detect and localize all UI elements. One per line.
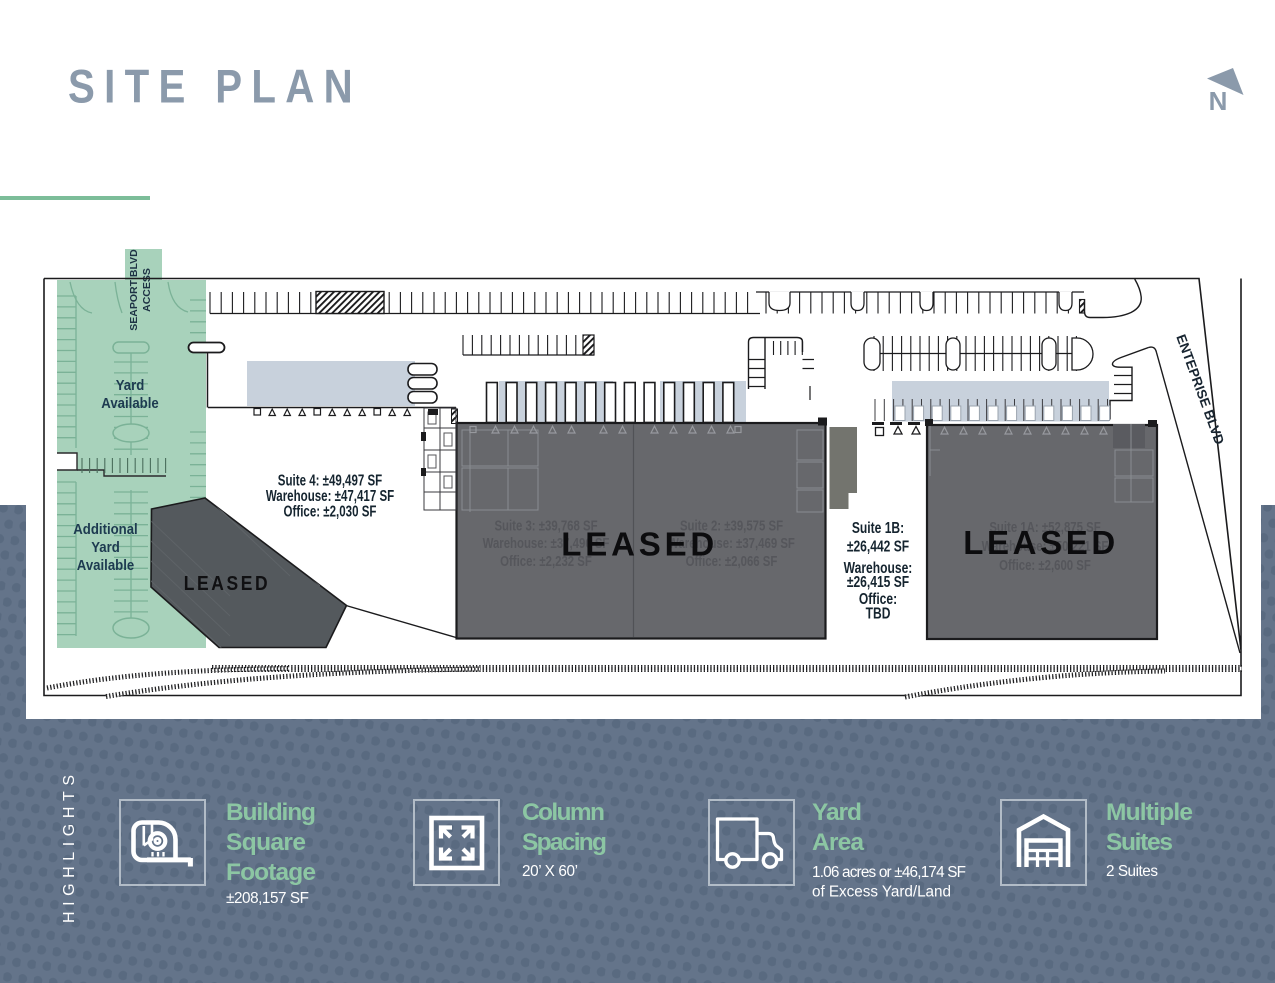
- svg-text:Yard: Yard: [116, 376, 145, 393]
- svg-text:SITE PLAN: SITE PLAN: [68, 61, 362, 114]
- svg-text:Column: Column: [522, 799, 605, 826]
- svg-text:Yard: Yard: [91, 538, 120, 555]
- svg-text:20’ X 60’: 20’ X 60’: [522, 863, 578, 880]
- svg-text:Available: Available: [77, 556, 135, 573]
- svg-text:Suites: Suites: [1106, 829, 1173, 856]
- svg-text:Yard: Yard: [812, 799, 862, 826]
- svg-text:N: N: [1209, 86, 1228, 116]
- svg-text:Suite 4: ±49,497 SF: Suite 4: ±49,497 SF: [278, 472, 382, 489]
- svg-text:Multiple: Multiple: [1106, 799, 1193, 826]
- svg-text:Suite 1B:: Suite 1B:: [852, 519, 904, 537]
- svg-text:Footage: Footage: [226, 859, 316, 886]
- svg-text:TBD: TBD: [866, 604, 891, 622]
- svg-text:SEAPORT BLVD: SEAPORT BLVD: [128, 249, 140, 331]
- svg-text:LEASED: LEASED: [963, 524, 1121, 561]
- svg-text:ACCESS: ACCESS: [141, 268, 153, 312]
- svg-text:2 Suites: 2 Suites: [1106, 863, 1158, 880]
- svg-text:Square: Square: [226, 829, 306, 856]
- svg-text:±26,415 SF: ±26,415 SF: [847, 573, 909, 591]
- svg-text:Spacing: Spacing: [522, 829, 607, 856]
- svg-text:LEASED: LEASED: [561, 526, 720, 563]
- svg-text:of Excess Yard/Land: of Excess Yard/Land: [812, 884, 951, 901]
- svg-text:LEASED: LEASED: [184, 573, 271, 595]
- svg-text:±26,442 SF: ±26,442 SF: [847, 537, 909, 555]
- svg-text:Available: Available: [101, 394, 159, 411]
- svg-text:Warehouse: ±47,417 SF: Warehouse: ±47,417 SF: [266, 487, 394, 504]
- svg-text:Additional: Additional: [73, 520, 137, 537]
- svg-text:Building: Building: [226, 799, 316, 826]
- svg-text:Area: Area: [812, 829, 864, 856]
- svg-text:Office: ±2,030 SF: Office: ±2,030 SF: [284, 503, 377, 520]
- svg-text:1.06 acres or ±46,174 SF: 1.06 acres or ±46,174 SF: [812, 864, 966, 881]
- svg-text:±208,157 SF: ±208,157 SF: [226, 890, 309, 907]
